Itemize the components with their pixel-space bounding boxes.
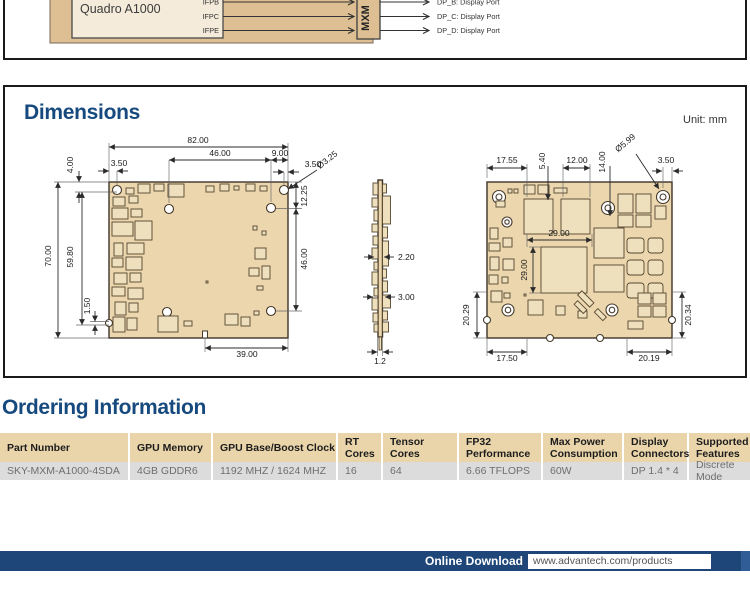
col-supported-features: Supported Features [689,433,750,462]
front-view: 82.00 46.00 9.00 3.50 3.50 Ø3.25 4.00 70… [43,135,340,359]
dim-front-total-height: 70.00 [43,245,53,267]
dimension-drawings: 82.00 46.00 9.00 3.50 3.50 Ø3.25 4.00 70… [0,85,750,377]
cell-gpu-memory: 4GB GDDR6 [130,462,213,480]
dim-back-right-height: 20.34 [683,304,693,326]
dim-front-top-offset: 4.00 [65,156,75,173]
table-row: SKY-MXM-A1000-4SDA 4GB GDDR6 1192 MHZ / … [0,462,750,480]
ordering-title: Ordering Information [2,396,206,420]
col-rt-cores: RT Cores [338,433,383,462]
dim-side-comp-top: 2.20 [398,252,415,262]
dim-back-left-height: 20.29 [461,304,471,326]
cell-supported-features: Discrete Mode [689,462,750,480]
gpu-label: Quadro A1000 [80,2,161,16]
dim-back-edge-right: 3.50 [658,155,675,165]
side-view: 2.20 3.00 1.2 [363,180,415,366]
cell-max-power: 60W [543,462,624,480]
dim-back-bottom-right: 20.19 [638,353,660,363]
cell-tensor-cores: 64 [383,462,459,480]
port-ifpe-label: IFPE [203,26,219,35]
col-gpu-memory: GPU Memory [130,433,213,462]
cell-display-connectors: DP 1.4 * 4 [624,462,689,480]
dim-front-right-span: 46.00 [299,248,309,270]
block-diagram: Quadro A1000 IFPB IFPC IFPE MXM DP_B: Di… [0,0,750,62]
dim-front-hole-span: 46.00 [209,148,231,158]
download-url[interactable]: www.advantech.com/products [533,555,672,567]
output-dpb-label: DP_B: Display Port [437,0,499,7]
dim-back-chip-width: 29.00 [548,228,570,238]
col-gpu-clock: GPU Base/Boost Clock [213,433,338,462]
dim-front-total-width: 82.00 [187,135,209,145]
ordering-table: Part Number GPU Memory GPU Base/Boost Cl… [0,433,750,480]
col-max-power: Max Power Consumption [543,433,624,462]
col-fp32-performance: FP32 Performance [459,433,543,462]
cell-fp32-performance: 6.66 TFLOPS [459,462,543,480]
dim-front-hole-right: 9.00 [272,148,289,158]
dim-back-comp-offset: 5.40 [537,152,547,169]
dim-front-right-top: 12.25 [299,185,309,207]
output-dpd-label: DP_D: Display Port [437,26,500,35]
online-download-label: Online Download [425,551,523,571]
dim-side-thickness: 1.2 [374,356,386,366]
dim-back-hole-dia: Ø5.99 [613,131,637,154]
connector-to-output-lines [380,2,429,31]
table-header-row: Part Number GPU Memory GPU Base/Boost Cl… [0,433,750,462]
dim-back-comp-width: 12.00 [566,155,588,165]
dim-front-notch: 1.50 [82,297,92,314]
footer-end-tab [741,551,750,571]
dim-front-hole-dia: Ø3.25 [315,148,340,170]
dim-back-chip-height: 29.00 [519,259,529,281]
mxm-connector-label: MXM [360,5,372,31]
footer-bar: Online Download www.advantech.com/produc… [0,551,750,571]
cell-gpu-clock: 1192 MHZ / 1624 MHZ [213,462,338,480]
dim-front-inner-height: 59.80 [65,246,75,268]
dim-back-hole-offset: 14.00 [597,151,607,173]
back-view: 17.55 5.40 12.00 14.00 Ø5.99 3.50 29.00 … [461,131,693,363]
dim-front-edge-left: 3.50 [111,158,128,168]
col-display-connectors: Display Connectors [624,433,689,462]
col-part-number: Part Number [0,433,130,462]
dim-back-top-left: 17.55 [496,155,518,165]
port-ifpb-label: IFPB [203,0,219,7]
port-ifpc-label: IFPC [202,12,219,21]
cell-rt-cores: 16 [338,462,383,480]
download-url-box[interactable]: www.advantech.com/products [528,554,711,569]
dim-back-bottom-left: 17.50 [496,353,518,363]
col-tensor-cores: Tensor Cores [383,433,459,462]
output-dpc-label: DP_C: Display Port [437,12,500,21]
dim-front-bottom-width: 39.00 [236,349,258,359]
cell-part-number: SKY-MXM-A1000-4SDA [0,462,130,480]
datasheet-page: Quadro A1000 IFPB IFPC IFPE MXM DP_B: Di… [0,0,750,591]
dim-side-comp-bottom: 3.00 [398,292,415,302]
